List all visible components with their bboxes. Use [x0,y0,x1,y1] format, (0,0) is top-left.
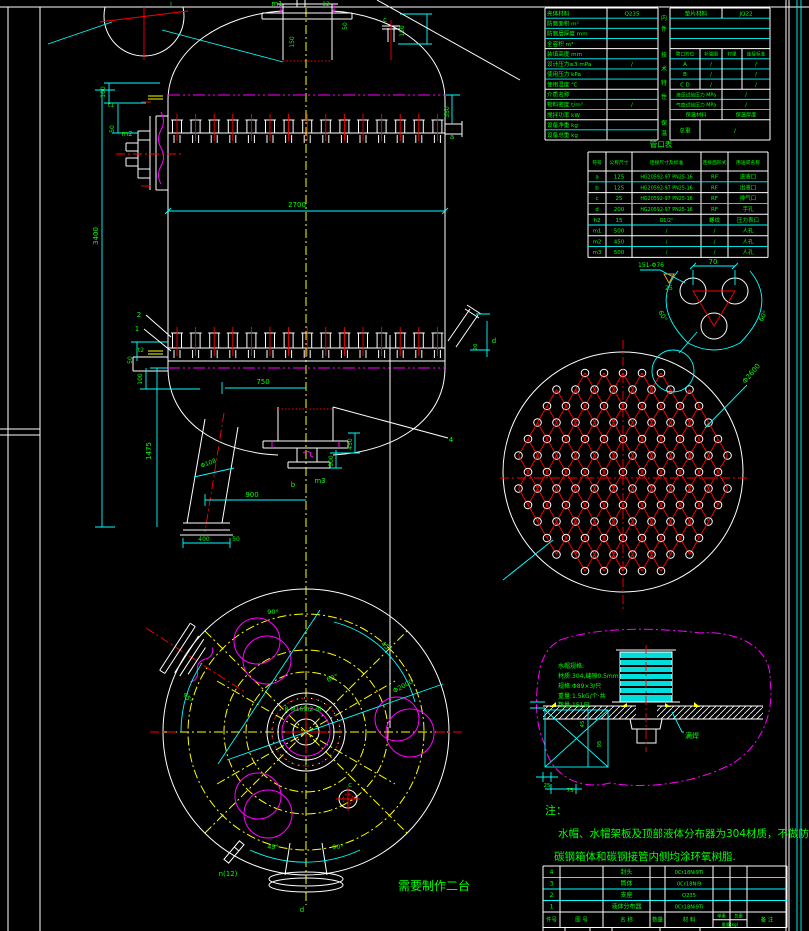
cad-viewport[interactable]: m11215050c150350a100t150m23400270021t250… [0,0,809,931]
nozzle-col-header: 符号 [592,159,602,166]
label-text: JQ22 [738,11,752,17]
nozzle-cell: / [714,239,716,245]
label-text: 总重 [679,126,691,134]
bom-name: 支座 [620,891,632,899]
label-text: 垫片材料 [685,9,708,17]
notes-label: 注： [545,803,567,817]
nozzle-cell: 螺纹 [709,216,721,224]
bottom-view [131,589,464,892]
dim-label: 8-M16(n2-d) [284,706,321,713]
dim-label: 25 [544,783,551,789]
nozzle-cell: G1/2" [660,218,674,224]
tech-label: 防腐层厚度 mm [547,30,588,38]
dim-label: 满焊 [685,731,699,740]
nozzle-cell: h2 [594,218,601,224]
dim-label: 151-Φ76 [638,262,664,269]
dim-label: m1 [271,0,282,8]
dim-label: n(12) [219,870,238,878]
support-leg [180,413,238,548]
dim-label: 4 [449,436,454,444]
dim-label: 90° [267,608,279,616]
nozzle-cell: 500 [614,250,625,256]
production-note: 需要制作二台 [398,878,470,893]
dim-label: a [450,133,454,141]
label-text: 补强圈 [704,51,718,58]
dim-label: c [383,16,387,24]
label-text: 名 称 [620,916,633,924]
tech-label: 壳体材料 [547,9,570,17]
label-text: 气密试验压力 MPa [676,102,716,109]
nozzle-cell: HG20592-97 PN25-16 [640,185,692,191]
dim-label: 150 [399,25,406,37]
tech-group-label: 特 [661,79,667,87]
dim-label: 350 [444,106,451,118]
nozzle-table-title: 管口表 [650,139,673,149]
notes-line-1: 水帽、水帽架板及顶部液体分布器为304材质，不做防腐. [558,827,809,840]
bom-item-no: 2 [550,892,554,899]
label-text: 保温厚度 [736,111,757,119]
nozzle-col-header: 公称尺寸 [609,159,628,166]
nozzle-cell: 进液口 [740,173,757,181]
label-text: / [710,82,712,88]
bom-material: Q235 [682,893,696,899]
label-text: / [745,103,747,109]
pitch-detail [640,263,762,350]
label-text: / [755,62,757,68]
nozzle-cell: RF [711,196,718,202]
label-text: C D [680,82,690,88]
notes-line-2: 碳钢箱体和碳钢接管内侧均涂环氧树脂. [554,850,736,863]
bom-item-no: 3 [550,881,554,888]
dim-label: 3400 [92,227,100,245]
dim-label: Φ2600 [741,362,762,385]
dim-label: 20 [473,343,479,350]
label-text: 连接标准 [747,51,766,58]
nozzle-cell: 125 [614,185,625,191]
nozzle-c-projection [336,787,360,811]
dim-label: 100 [137,373,144,385]
tech-group-label: 件 [661,25,667,33]
bom-name: 封头 [620,868,632,876]
nozzle-cell: 15 [616,218,623,224]
dim-label: t1 [108,102,114,109]
tech-label: 全容积 m³ [547,40,573,48]
label-text: A [683,62,687,68]
dim-label: 70 [709,258,718,266]
tech-label: 介质名称 [547,91,570,99]
tech-label: 设计压力≤3 mPa [547,60,591,68]
dim-label: Φ2000 [392,678,415,695]
bom-item-no: 1 [550,904,554,911]
label-text: / [710,62,712,68]
nozzle-m2 [116,102,182,190]
nozzle-cell: 25 [616,196,623,202]
bom-name: 液体分布器 [611,903,641,911]
label-text: 衬里 [727,51,737,58]
nozzle-cell: 200 [614,207,625,213]
label-text: 备 注 [761,916,774,924]
label-text: / [755,82,757,88]
dim-label: 50 [127,356,134,364]
tech-value: / [631,103,633,109]
dim-label: 75 [567,788,574,794]
nozzle-cell: RF [711,207,718,213]
bom-material: 0Cr18Ni9 [677,882,701,888]
cad-canvas[interactable]: m11215050c150350a100t150m23400270021t250… [0,0,809,931]
label-text: 管口方位 [676,51,695,58]
dim-label: 1 [135,325,139,333]
nozzle-cell: / [714,229,716,235]
nozzle-cell: / [666,250,668,256]
bom-item-no: 4 [550,869,554,876]
dim-label: 90° [332,843,344,851]
tech-value: Q235 [624,11,640,17]
bom-title-block: 4封头0Cr18Ni9Ti3筒体0Cr18Ni92支座Q2351液体分布器0Cr… [543,866,787,931]
notes-block: 注： 水帽、水帽架板及顶部液体分布器为304材质，不做防腐. 碳钢箱体和碳钢接管… [545,803,809,863]
nozzle-cell: 人孔 [742,237,754,245]
dim-label: 规格:Φ89×3/只 [558,682,601,690]
dim-label: 50 [232,536,240,543]
bom-material: 0Cr18Ni9Ti [675,905,704,911]
tech-group-label: 内 [661,14,667,22]
dim-label: m2 [121,130,132,138]
nozzle-cell: m2 [593,239,602,245]
nozzle-cell: 450 [614,239,625,245]
nozzle-cell: HG20592-97 PN25-16 [640,196,692,202]
label-text: 单重 [717,913,726,920]
tech-label: 防腐面积 m² [547,19,579,27]
label-text: / [710,72,712,78]
nozzle-cell: 出液口 [740,183,757,191]
nozzle-cell: d [595,207,599,213]
tech-group-label: 技 [661,51,667,59]
nozzle-m3 [263,407,360,468]
dim-label: d [492,337,496,345]
label-text: B [683,72,687,78]
nozzle-c [382,14,432,60]
nozzle-cell: / [666,239,668,245]
front-view [95,0,520,905]
nozzle-cell: HG20592-97 PN25-16 [640,207,692,213]
dim-label: 2700 [288,201,306,209]
nozzle-cell: / [666,229,668,235]
m2-projection [131,605,260,716]
dim-label: 材质:304,缝隙0.5mm [558,672,619,680]
dim-label: 1475 [145,442,153,460]
dim-label: b [291,481,296,489]
dim-label: Ⅰ [170,1,172,8]
nozzle-cell: 125 [614,175,625,181]
tech-label: 使用压力 kPa [547,70,581,78]
nozzle-cell: m3 [593,250,602,256]
nozzle-cell: m1 [593,229,602,235]
nozzle-cell: 人孔 [742,227,754,235]
dim-label: 450 [347,438,354,450]
dim-label: d [300,906,304,914]
tech-label: 物料密度 t/m³ [547,101,583,109]
tech-group-label: 性 [661,93,667,101]
label-text: / [734,128,736,134]
nozzle-cell: RF [711,185,718,191]
nozzle-cell: 人孔 [742,248,754,256]
label-text: 件号 [546,916,557,924]
nozzle-cell: b [595,185,599,191]
label-text: / [755,72,757,78]
nozzle-cell: a [595,175,598,181]
nozzle-cell: 500 [614,229,625,235]
dim-label: m3 [314,477,325,485]
dim-label: 95 [597,740,603,747]
water-cap-row-bottom [171,327,443,358]
label-text: 重量(kg) [722,921,739,928]
dim-label: c [348,781,352,789]
dim-label: 45° [267,843,279,851]
dim-label: 400 [198,536,210,543]
tech-label: 使用温度 ℃ [547,80,577,88]
dim-label: 25 [665,285,673,292]
nozzle-col-header: 连接面形式 [703,159,727,166]
dim-label: 45° [181,691,194,705]
tech-label: 设备净重 kg [547,121,578,129]
label-text: 液压试验压力 MPa [676,91,716,98]
dim-label: 300 [328,455,335,467]
tech-group-label: 温 [661,129,667,137]
dim-label: 900 [245,491,258,499]
dim-label: 2 [137,311,141,319]
nozzle-cell: c [595,196,598,202]
dim-label: 50 [109,125,116,133]
water-cap-row-top [171,114,443,143]
dim-label: 数量:151只 [558,701,589,709]
nozzle-cell: 压力表口 [737,216,759,224]
dim-label: t2 [138,347,144,354]
dim-label: 150 [289,36,296,48]
nozzle-cell: / [714,250,716,256]
label-text: / [745,92,747,98]
tech-spec-table: 壳体材料Q235防腐面积 m²防腐层厚度 mm全容积 m³装填高度 mm设计压力… [545,8,770,140]
dim-label: 50 [342,22,349,30]
dim-label: 60° [757,309,770,323]
label-text: 数量 [652,916,663,924]
dim-label: 750 [256,378,269,386]
watercap-detail [530,629,771,794]
dim-label: 水帽规格: [558,662,584,670]
label-text: 总重 [734,913,743,920]
tech-label: 搅拌功率 kW [547,111,580,119]
bom-name: 筒体 [620,880,632,888]
tech-group-label: 术 [661,65,667,73]
nozzle-table: 管口表符号公称尺寸连接尺寸及标准连接面形式用途或名称a125HG20592-97… [588,139,768,257]
tech-label: 设备总重 kg [547,131,578,139]
nozzle-cell: 排气口 [740,194,757,202]
dim-label: 12 [322,1,330,8]
nozzle-cell: 手孔 [742,205,754,213]
label-text: 材 料 [683,916,696,924]
nozzle-d [448,305,490,357]
packing-detail [48,0,283,62]
annotation-labels: m11215050c150350a100t150m23400270021t250… [92,0,770,914]
dim-label: 60° [326,672,340,683]
bom-material: 0Cr18Ni9Ti [675,870,704,876]
nozzle-cell: RF [711,175,718,181]
tech-group-label: 保 [661,119,667,127]
dim-label: 100 [100,86,107,98]
tech-value: / [631,62,633,68]
label-text: 保温材料 [686,111,707,119]
nozzle-m1 [262,4,352,61]
label-text: 图 号 [575,916,588,924]
dim-label: 45 [580,720,586,727]
dim-label: Φ108 [200,457,218,469]
tech-label: 装填高度 mm [547,50,582,58]
dim-label: 重量:1.5kG/个·共 [558,692,606,700]
nozzle-col-header: 连接尺寸及标准 [650,159,684,166]
nozzle-col-header: 用途或名称 [736,159,760,166]
tube-sheet-view [500,332,750,612]
nozzle-cell: HG20592-97 PN25-16 [640,175,692,181]
